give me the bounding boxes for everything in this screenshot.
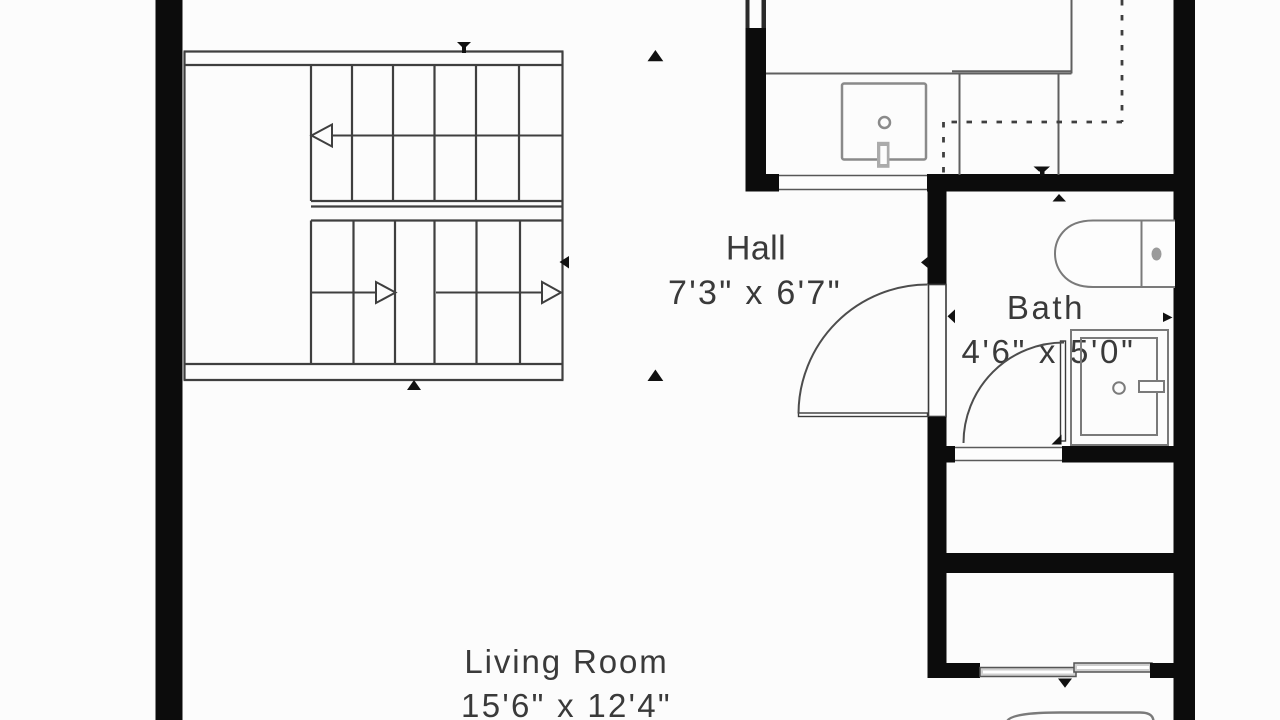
svg-text:Living Room: Living Room xyxy=(464,643,668,680)
svg-text:Hall: Hall xyxy=(726,230,786,268)
svg-text:15'6" x 12'4": 15'6" x 12'4" xyxy=(461,687,672,720)
svg-text:7'3" x 6'7": 7'3" x 6'7" xyxy=(668,274,842,312)
svg-text:Bath: Bath xyxy=(1007,289,1085,326)
